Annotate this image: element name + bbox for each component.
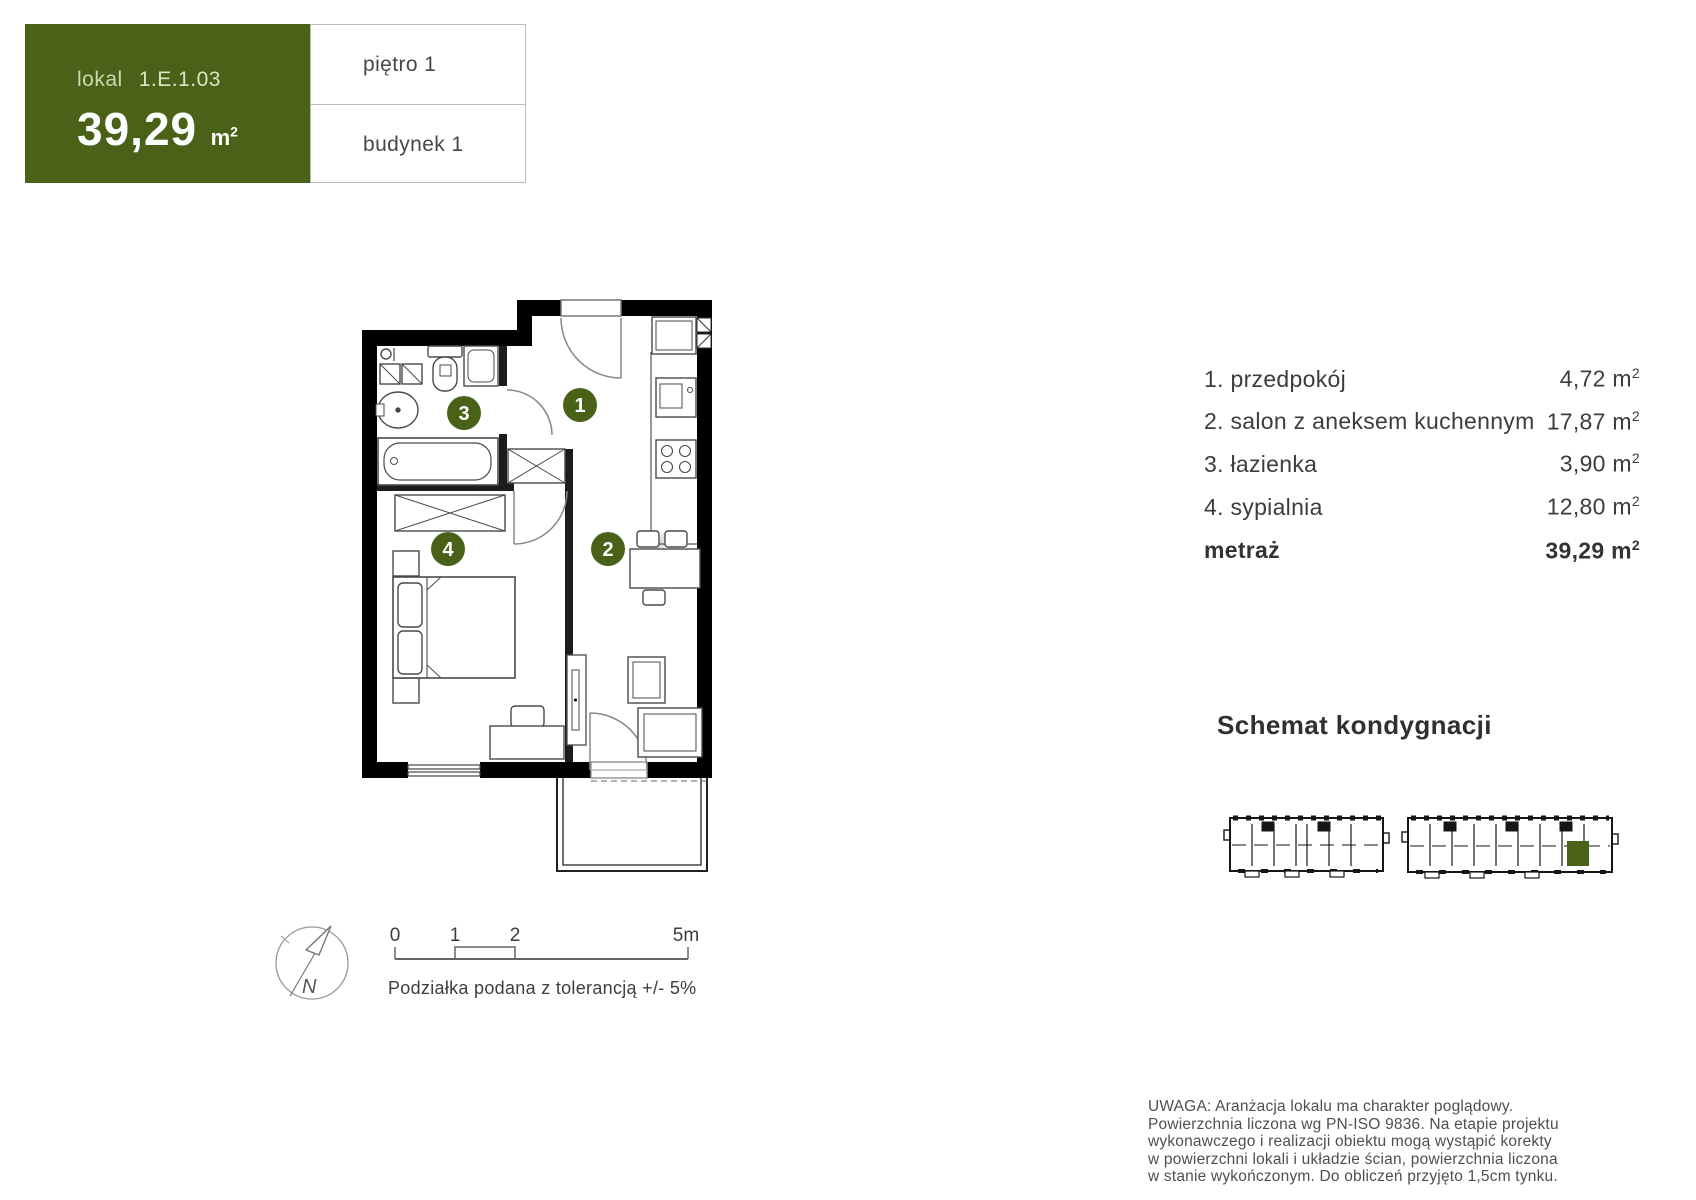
room-row: 2. salon z aneksem kuchennym 17,87 m2	[1204, 405, 1640, 434]
bedroom-furniture	[393, 449, 565, 759]
room-row: 4. sypialnia 12,80 m2	[1204, 490, 1640, 519]
stove	[656, 440, 696, 478]
room-area: 12,80 m2	[1547, 490, 1640, 519]
building-label: budynek 1	[363, 133, 464, 157]
disclaimer-text: UWAGA: Aranżacja lokalu ma charakter pog…	[1148, 1098, 1566, 1186]
scale-tick-2: 2	[510, 925, 521, 946]
building-schematics	[1220, 808, 1620, 882]
north-compass: N	[276, 926, 348, 999]
unit-badge: lokal1.E.1.03 39,29 m2	[25, 24, 310, 183]
room-marker-1-number: 1	[574, 395, 585, 417]
dining-table	[630, 549, 700, 588]
chair	[637, 531, 659, 547]
desk-chair	[511, 706, 544, 727]
total-row: metraż 39,29 m2	[1204, 534, 1640, 563]
room-label: 2. salon z aneksem kuchennym	[1204, 410, 1535, 433]
nightstand	[393, 551, 419, 576]
total-label: metraż	[1204, 539, 1280, 562]
scale-tick-5m: 5m	[673, 925, 699, 946]
bedroom-door-arc	[514, 491, 567, 544]
entrance-door-arc	[561, 318, 621, 378]
floor-label: piętro 1	[363, 53, 436, 77]
unit-id-line: lokal1.E.1.03	[77, 68, 221, 92]
bathroom-door-arc	[507, 390, 552, 435]
nightstand	[393, 678, 419, 703]
scale-tick-1: 1	[450, 925, 461, 946]
room-row: 3. łazienka 3,90 m2	[1204, 447, 1640, 476]
building-cell: budynek 1	[311, 105, 525, 184]
unit-area-unit: m2	[211, 125, 238, 150]
chair	[643, 590, 665, 605]
floor-schematic-title: Schemat kondygnacji	[1217, 710, 1492, 741]
toilet-tank	[428, 346, 462, 357]
living-kitchen-furniture	[567, 317, 711, 757]
scale-and-compass: N 0 1 2 5m	[265, 915, 705, 1015]
bedroom-window	[408, 762, 480, 778]
desk	[490, 726, 564, 759]
unit-id: 1.E.1.03	[139, 68, 221, 91]
room-row: 1. przedpokój 4,72 m2	[1204, 362, 1640, 391]
highlighted-unit	[1567, 841, 1589, 866]
room-list: 1. przedpokój 4,72 m2 2. salon z aneksem…	[1204, 362, 1640, 576]
room-label: 3. łazienka	[1204, 453, 1317, 476]
room-marker-4-number: 4	[442, 539, 454, 561]
unit-label: lokal	[77, 68, 123, 91]
scale-tick-0: 0	[390, 925, 401, 946]
room-label: 1. przedpokój	[1204, 368, 1346, 391]
scale-bar: 0 1 2 5m	[390, 925, 699, 959]
room-marker-2-number: 2	[602, 539, 613, 561]
floor-building-box: piętro 1 budynek 1	[310, 24, 526, 183]
floorplan-sheet: lokal1.E.1.03 39,29 m2 piętro 1 budynek …	[0, 0, 1696, 1200]
room-label: 4. sypialnia	[1204, 496, 1323, 519]
building-outline-right	[1402, 818, 1618, 878]
floor-cell: piętro 1	[311, 25, 525, 105]
north-arrow	[306, 926, 331, 955]
room-area: 4,72 m2	[1560, 362, 1640, 391]
chair	[665, 531, 687, 547]
total-area: 39,29 m2	[1545, 534, 1640, 563]
floorplan-drawing: 1 2 3 4	[350, 280, 720, 880]
scale-caption: Podziałka podana z tolerancją +/- 5%	[388, 978, 697, 999]
north-label: N	[302, 976, 317, 998]
room-marker-3-number: 3	[458, 403, 469, 425]
room-area: 3,90 m2	[1560, 447, 1640, 476]
room-area: 17,87 m2	[1547, 405, 1640, 434]
unit-area-value: 39,29	[77, 103, 197, 155]
unit-area-line: 39,29 m2	[77, 102, 238, 156]
building-outline-left	[1224, 818, 1389, 877]
balcony	[557, 778, 707, 871]
